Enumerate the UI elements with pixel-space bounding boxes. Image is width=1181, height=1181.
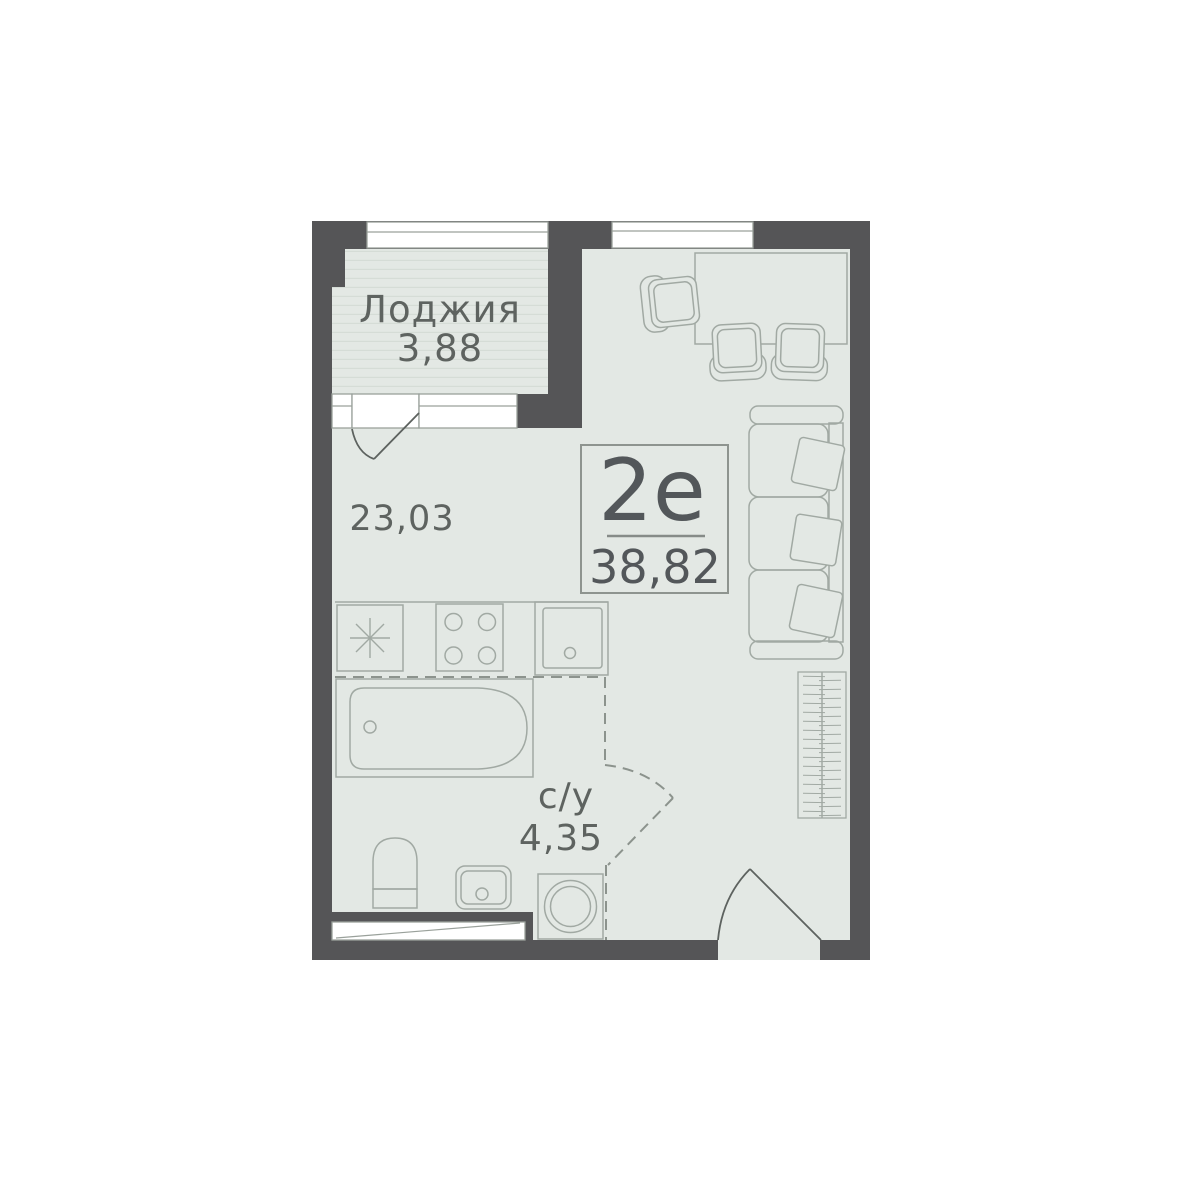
loggia-window (367, 222, 548, 248)
living-area-label: 23,03 (349, 499, 454, 539)
wardrobe-icon (798, 672, 846, 818)
living-window (612, 222, 753, 248)
bathroom-name-label: с/у (538, 776, 594, 817)
unit-total-area-label: 38,82 (589, 540, 721, 594)
floor-plan-canvas: 2е 38,82 Лоджия 3,88 23,03 с/у 4,35 (0, 0, 1181, 1181)
unit-type-label: 2е (598, 441, 706, 541)
chair-icon (771, 323, 829, 381)
loggia-area-label: 3,88 (397, 327, 483, 370)
bathroom-window (332, 922, 525, 940)
floor-plan-svg: 2е 38,82 Лоджия 3,88 23,03 с/у 4,35 (0, 0, 1181, 1181)
chair-icon (708, 323, 767, 382)
chair-icon (639, 272, 701, 334)
loggia-partition (332, 394, 517, 428)
loggia-name-label: Лоджия (359, 288, 521, 331)
bathroom-area-label: 4,35 (519, 818, 603, 859)
sofa-pillow-icon (789, 437, 846, 639)
